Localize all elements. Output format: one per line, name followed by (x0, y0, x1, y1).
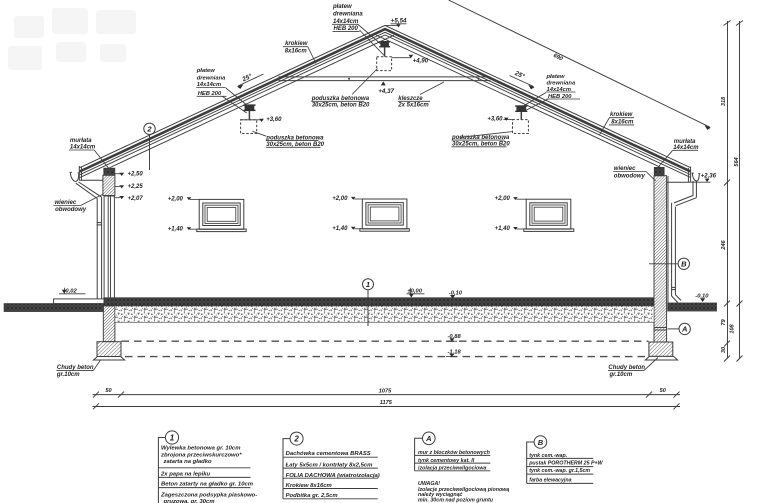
svg-text:murłata: murłata (674, 139, 696, 145)
svg-text:gr.10cm: gr.10cm (609, 372, 633, 378)
svg-text:B: B (538, 438, 544, 447)
svg-text:farba elewacyjna: farba elewacyjna (529, 477, 571, 483)
svg-text:drewniana: drewniana (197, 76, 226, 82)
svg-text:gruzowa, gr. 30cm: gruzowa, gr. 30cm (163, 499, 215, 503)
svg-text:B: B (681, 260, 687, 269)
svg-text:2: 2 (293, 435, 299, 444)
svg-text:318: 318 (721, 96, 727, 106)
svg-text:Beton zatarty na gładko gr. 10: Beton zatarty na gładko gr. 10cm (161, 482, 253, 488)
svg-text:1175: 1175 (380, 400, 393, 406)
svg-text:564: 564 (734, 156, 740, 166)
svg-text:+2,00: +2,00 (495, 196, 511, 202)
svg-text:Dachówka cementowa BRASS: Dachówka cementowa BRASS (286, 451, 371, 457)
svg-text:2x 5x16cm: 2x 5x16cm (397, 102, 429, 108)
svg-text:108: 108 (730, 323, 736, 333)
svg-text:murłata: murłata (70, 138, 92, 144)
svg-text:płatew: płatew (196, 68, 216, 74)
svg-text:2x papa na lepiku: 2x papa na lepiku (160, 472, 211, 478)
svg-text:79: 79 (721, 319, 727, 326)
svg-text:Zageszczona podsypka piaskowo-: Zageszczona podsypka piaskowo- (160, 492, 257, 498)
svg-text:Wylewka betonowa gr. 10cm: Wylewka betonowa gr. 10cm (161, 446, 240, 452)
svg-text:drewniana: drewniana (547, 80, 576, 86)
svg-text:+4,37: +4,37 (378, 88, 394, 95)
svg-text:30: 30 (721, 346, 727, 353)
svg-text:+3,60: +3,60 (266, 117, 282, 123)
svg-text:+2,07: +2,07 (128, 196, 144, 202)
svg-text:1075: 1075 (379, 388, 392, 394)
svg-text:obwodowy: obwodowy (614, 173, 646, 179)
svg-text:-1,18: -1,18 (448, 350, 462, 356)
svg-text:246: 246 (721, 239, 727, 250)
svg-text:+1,40: +1,40 (495, 226, 511, 232)
svg-text:+2,50: +2,50 (128, 171, 144, 177)
svg-text:zbrojona przeciwskurczowo*: zbrojona przeciwskurczowo* (160, 453, 242, 459)
svg-text:tynk cem.-wap. gr.1,5cm: tynk cem.-wap. gr.1,5cm (529, 468, 590, 474)
svg-text:50: 50 (105, 388, 112, 394)
svg-text:50: 50 (660, 388, 667, 394)
svg-text:Podbitka gr. 2,5cm: Podbitka gr. 2,5cm (286, 493, 338, 499)
svg-text:+4,90: +4,90 (413, 58, 429, 65)
svg-text:-0,88: -0,88 (448, 334, 462, 340)
svg-text:pustak POROTHERM 25 P+W: pustak POROTHERM 25 P+W (528, 461, 603, 467)
svg-text:gr.10cm: gr.10cm (56, 372, 80, 378)
svg-text:płatew: płatew (546, 74, 566, 80)
svg-text:8x16cm: 8x16cm (285, 49, 308, 55)
svg-text:2: 2 (146, 125, 152, 134)
svg-text:min. 30cm nad poziom gruntu: min. 30cm nad poziom gruntu (418, 498, 494, 503)
svg-text:+3,60: +3,60 (487, 116, 503, 122)
svg-text:+1,40: +1,40 (332, 226, 348, 232)
svg-text:30x25cm, beton B20: 30x25cm, beton B20 (312, 102, 370, 108)
svg-text:1: 1 (366, 280, 370, 289)
svg-text:+2,00: +2,00 (332, 196, 348, 202)
svg-text:obwodowy: obwodowy (55, 207, 87, 213)
svg-text:+2,00: +2,00 (168, 196, 184, 202)
svg-text:zatarta na gładko: zatarta na gładko (163, 459, 213, 465)
svg-text:Łaty 5x5cm / kontrłaty 8x2,5cm: Łaty 5x5cm / kontrłaty 8x2,5cm (285, 462, 373, 468)
svg-text:A: A (681, 325, 687, 334)
svg-text:+1,40: +1,40 (168, 226, 184, 232)
svg-text:A: A (425, 434, 431, 443)
svg-text:+2,36: +2,36 (701, 173, 717, 179)
svg-text:płatew: płatew (332, 4, 352, 10)
svg-text:1: 1 (170, 434, 175, 443)
svg-text:+2,25: +2,25 (128, 184, 144, 190)
svg-text:drewniana: drewniana (333, 11, 363, 17)
